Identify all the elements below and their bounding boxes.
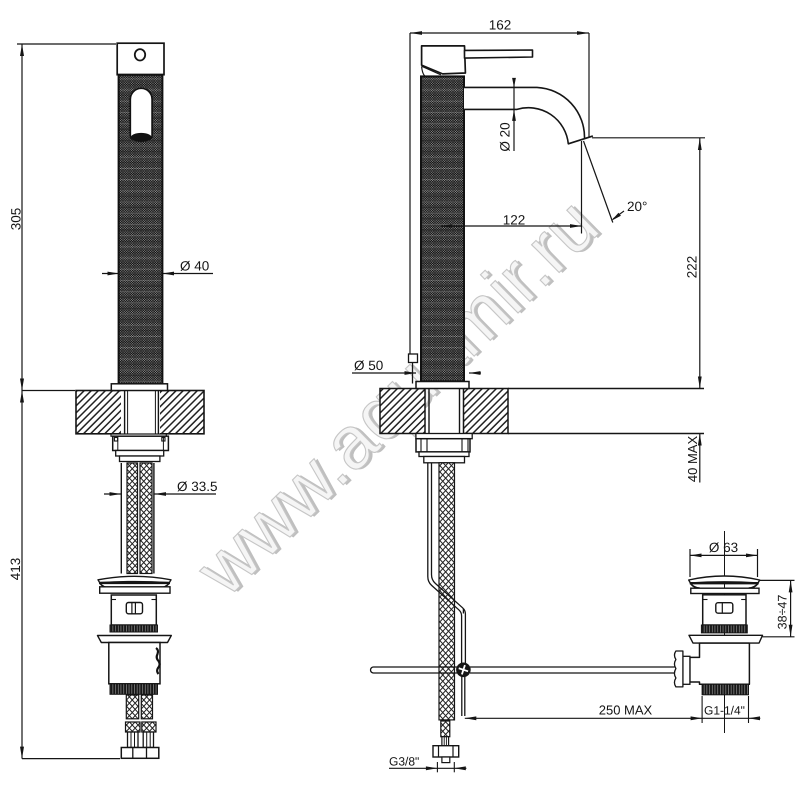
svg-text:G3/8": G3/8" bbox=[389, 755, 419, 769]
svg-text:222: 222 bbox=[685, 256, 700, 279]
svg-text:Ø 33.5: Ø 33.5 bbox=[177, 479, 218, 494]
svg-text:162: 162 bbox=[489, 18, 512, 33]
svg-text:122: 122 bbox=[503, 213, 526, 228]
svg-text:40 MAX: 40 MAX bbox=[685, 436, 700, 483]
svg-text:305: 305 bbox=[9, 208, 24, 231]
svg-text:Ø 50: Ø 50 bbox=[354, 358, 383, 373]
svg-text:20°: 20° bbox=[627, 199, 647, 214]
svg-text:250 MAX: 250 MAX bbox=[599, 703, 653, 718]
svg-text:Ø 40: Ø 40 bbox=[180, 259, 209, 274]
svg-text:Ø 20: Ø 20 bbox=[498, 122, 513, 151]
svg-text:413: 413 bbox=[8, 558, 23, 581]
svg-text:G1-1/4": G1-1/4" bbox=[704, 704, 745, 718]
svg-text:Ø 63: Ø 63 bbox=[709, 540, 738, 555]
svg-text:38÷47: 38÷47 bbox=[776, 595, 790, 630]
